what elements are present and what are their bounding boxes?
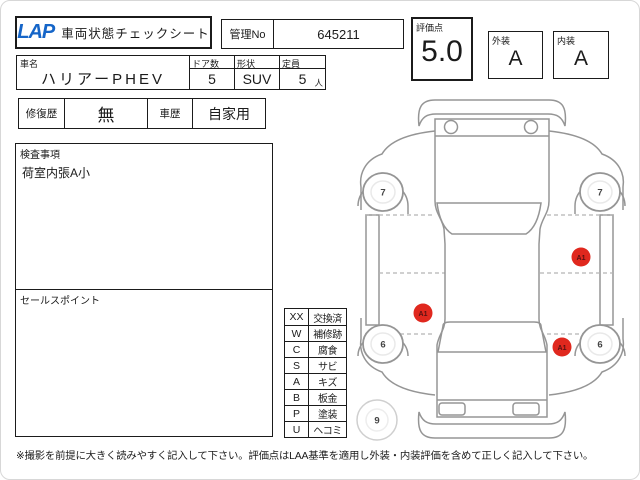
doors-cell: ドア数 5	[189, 56, 234, 89]
car-body	[435, 119, 549, 417]
spare-mark-circle: 9	[357, 400, 397, 440]
legend-code: XX	[285, 309, 309, 325]
vehicle-name-cell: 車名 ハリアーPHEV	[17, 56, 189, 89]
legend-row: Sサビ	[285, 357, 346, 373]
interior-grade-box: 内装 A	[553, 31, 609, 79]
manage-no-box: 管理No 645211	[221, 19, 404, 49]
legend-code: U	[285, 422, 309, 437]
capacity-unit: 人	[314, 77, 323, 89]
damage-marker-right-side: A1	[572, 248, 591, 267]
wheel-front-left: 6	[363, 325, 403, 363]
capacity-cell: 定員 5 人	[279, 56, 325, 89]
vehicle-check-sheet: LAP 車両状態チェックシート 管理No 645211 評価点 5.0 外装 A…	[0, 0, 640, 480]
wheel-front-right: 6	[580, 325, 620, 363]
legend-desc: 腐食	[309, 342, 346, 357]
rating-value: 5.0	[413, 34, 471, 70]
footer-note: ※撮影を前提に大きく読みやすく記入して下さい。評価点はLAA基準を適用し外装・内…	[16, 447, 634, 462]
legend-code: B	[285, 390, 309, 405]
car-history-value: 自家用	[193, 99, 265, 128]
legend-code: C	[285, 342, 309, 357]
doors-label: ドア数	[190, 56, 234, 69]
svg-text:A1: A1	[419, 311, 428, 318]
capacity-label: 定員	[280, 56, 325, 69]
legend-desc: ヘコミ	[309, 422, 346, 437]
legend-row: Uヘコミ	[285, 421, 346, 437]
damage-marker-front-right: A1	[553, 338, 572, 357]
legend-desc: サビ	[309, 358, 346, 373]
legend-desc: 塗装	[309, 406, 346, 421]
rating-label: 評価点	[413, 19, 471, 34]
sales-point-label: セールスポイント	[16, 290, 272, 307]
capacity-value: 5	[299, 71, 307, 87]
repair-history-value: 無	[64, 99, 148, 128]
inspection-content: 荷室内張A小	[16, 161, 272, 181]
svg-text:9: 9	[374, 416, 379, 427]
interior-label: 内装	[554, 32, 608, 47]
shape-label: 形状	[235, 56, 279, 69]
legend-table: XX交換済 W補修跡 C腐食 Sサビ Aキズ B板金 P塗装 Uヘコミ	[284, 308, 347, 438]
legend-row: B板金	[285, 389, 346, 405]
manage-no-value: 645211	[274, 20, 403, 48]
doors-value: 5	[190, 69, 234, 89]
legend-row: W補修跡	[285, 325, 346, 341]
lap-logo: LAP	[17, 21, 54, 44]
rating-box: 評価点 5.0	[411, 17, 473, 81]
exterior-value: A	[489, 47, 542, 71]
legend-code: W	[285, 326, 309, 341]
legend-code: A	[285, 374, 309, 389]
legend-desc: 板金	[309, 390, 346, 405]
interior-value: A	[554, 47, 608, 71]
legend-desc: 補修跡	[309, 326, 346, 341]
wheel-rear-left: 7	[363, 173, 403, 211]
exterior-label: 外装	[489, 32, 542, 47]
sales-point-content	[16, 307, 272, 310]
wheel-rear-right: 7	[580, 173, 620, 211]
shape-cell: 形状 SUV	[234, 56, 279, 89]
legend-row: C腐食	[285, 341, 346, 357]
car-outline	[358, 100, 625, 438]
exterior-grade-box: 外装 A	[488, 31, 543, 79]
legend-row: Aキズ	[285, 373, 346, 389]
svg-text:6: 6	[380, 340, 385, 351]
manage-no-label: 管理No	[222, 20, 274, 48]
legend-code: S	[285, 358, 309, 373]
svg-text:A1: A1	[558, 345, 567, 352]
header-box: LAP 車両状態チェックシート	[15, 16, 212, 49]
left-sill	[366, 215, 379, 325]
damage-marker-left-side: A1	[414, 304, 433, 323]
legend-desc: キズ	[309, 374, 346, 389]
inspection-box: 検査事項 荷室内張A小	[15, 143, 273, 290]
legend-code: P	[285, 406, 309, 421]
car-top-view-diagram: 7 7 6 6 9	[351, 86, 640, 446]
legend-row: XX交換済	[285, 309, 346, 325]
vehicle-info-table: 車名 ハリアーPHEV ドア数 5 形状 SUV 定員 5 人	[16, 55, 326, 90]
svg-text:7: 7	[597, 188, 602, 199]
legend-desc: 交換済	[309, 309, 346, 325]
svg-text:A1: A1	[577, 255, 586, 262]
repair-history-label: 修復歴	[19, 99, 64, 128]
inspection-label: 検査事項	[16, 144, 272, 161]
legend-row: P塗装	[285, 405, 346, 421]
svg-text:6: 6	[597, 340, 602, 351]
right-sill	[600, 215, 613, 325]
vehicle-name-value: ハリアーPHEV	[17, 68, 189, 89]
car-history-label: 車歴	[148, 99, 193, 128]
sales-point-box: セールスポイント	[15, 289, 273, 437]
sheet-title: 車両状態チェックシート	[61, 23, 210, 42]
history-table: 修復歴 無 車歴 自家用	[18, 98, 266, 129]
svg-text:7: 7	[380, 188, 385, 199]
shape-value: SUV	[235, 69, 279, 89]
